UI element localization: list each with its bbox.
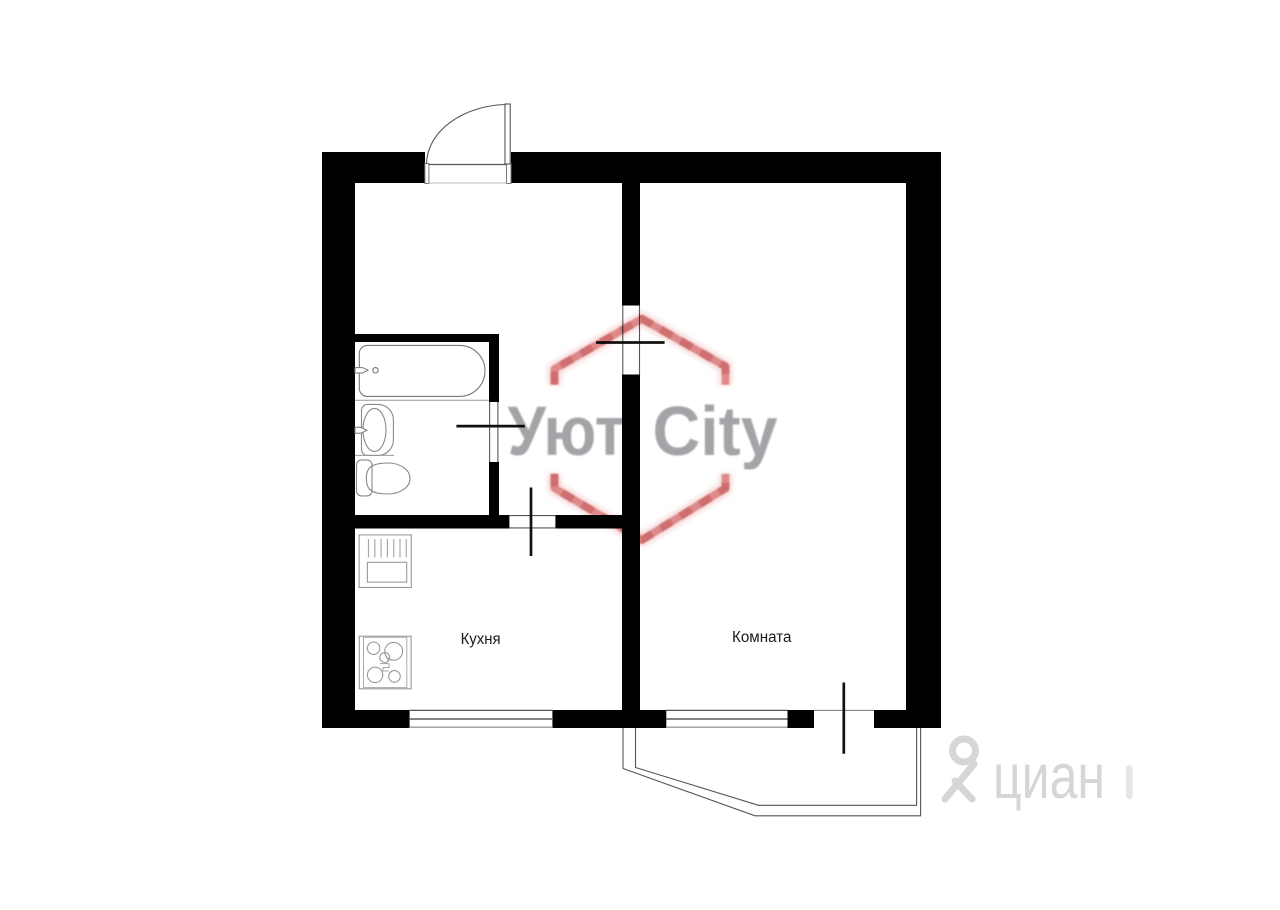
svg-text:Комната: Комната <box>732 629 792 646</box>
svg-text:Кухня: Кухня <box>461 631 501 648</box>
svg-text:циан: циан <box>993 742 1105 812</box>
svg-text:Уют: Уют <box>508 392 626 470</box>
svg-text:City: City <box>653 392 778 470</box>
